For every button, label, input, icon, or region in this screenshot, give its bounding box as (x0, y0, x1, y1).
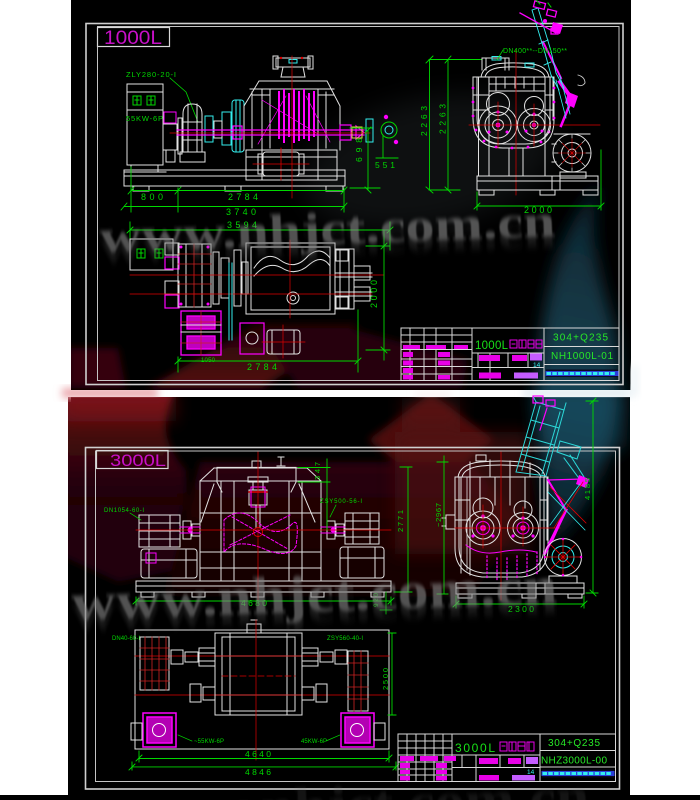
svg-text:~2967: ~2967 (434, 503, 443, 527)
svg-text:347: 347 (313, 462, 322, 480)
svg-text:2771: 2771 (396, 510, 405, 532)
svg-text:45KW-6P: 45KW-6P (301, 739, 327, 745)
svg-text:1000L: 1000L (475, 340, 509, 352)
svg-text:55KW-6P: 55KW-6P (126, 114, 163, 123)
svg-text:3000L: 3000L (110, 451, 166, 470)
svg-text:1000L: 1000L (104, 28, 162, 49)
svg-text:800: 800 (141, 192, 163, 202)
svg-text:4185: 4185 (583, 478, 592, 500)
svg-text:3000L: 3000L (455, 741, 495, 755)
svg-text:304+Q235: 304+Q235 (553, 333, 608, 344)
svg-text:DN1054-60-I: DN1054-60-I (104, 508, 144, 514)
svg-text:ZSY500-56-I: ZSY500-56-I (320, 499, 362, 505)
svg-text:698: 698 (354, 138, 364, 162)
svg-text:14: 14 (533, 362, 541, 369)
svg-text:ZLY280-20-I: ZLY280-20-I (126, 70, 176, 79)
svg-text:NHZ3000L-00: NHZ3000L-00 (541, 756, 607, 767)
svg-text:1050: 1050 (201, 358, 216, 364)
svg-text:ZSY560-40-I: ZSY560-40-I (327, 636, 363, 642)
svg-text:304+Q235: 304+Q235 (548, 738, 600, 749)
svg-text:DN400**--DN150**: DN400**--DN150** (503, 48, 567, 55)
svg-text:551: 551 (375, 160, 395, 170)
svg-text:DN40-60-I: DN40-60-I (112, 636, 140, 642)
svg-text:2500: 2500 (381, 668, 390, 690)
svg-text:NH1000L-01: NH1000L-01 (551, 351, 613, 362)
svg-text:~55KW-6P: ~55KW-6P (194, 739, 224, 745)
